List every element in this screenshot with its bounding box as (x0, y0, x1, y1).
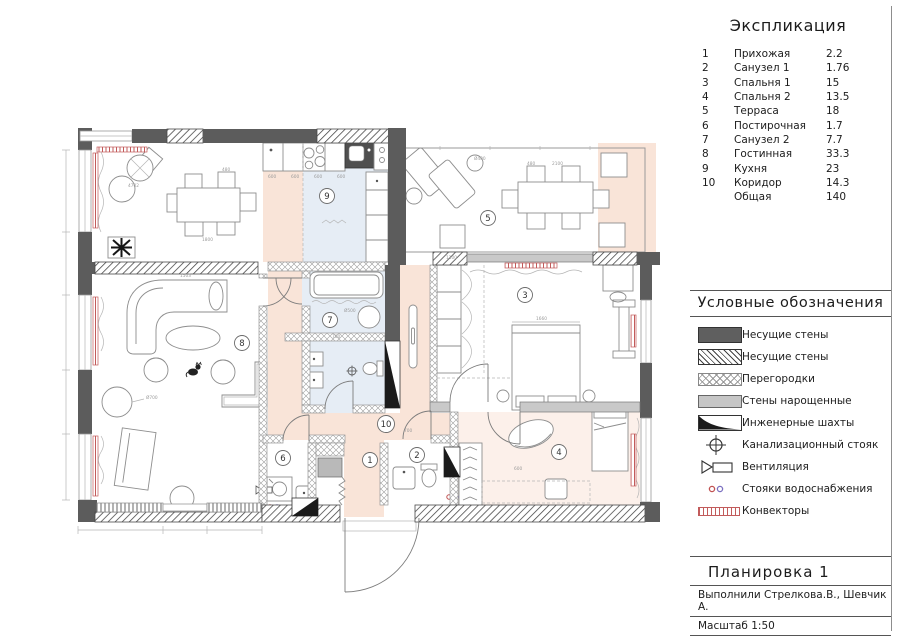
drawing-sheet: 4702 480 1800 1503 Ø700 Ø500 700 600 600… (0, 0, 900, 636)
plant-box (108, 237, 135, 258)
legend-item: Стены нарощенные (690, 390, 891, 412)
svg-text:1503: 1503 (180, 273, 191, 279)
explication-row: 3Спальня 115 (690, 76, 886, 90)
sheet-scale: Масштаб 1:50 (690, 617, 891, 635)
explication-row: 5Терраса18 (690, 104, 886, 118)
svg-text:9: 9 (324, 192, 329, 202)
svg-text:600: 600 (291, 174, 299, 180)
partition-swatch-icon (690, 373, 742, 386)
legend-item: Несущие стены (690, 324, 891, 346)
water-risers-icon (690, 483, 742, 495)
svg-text:2: 2 (414, 451, 419, 461)
sewer-riser-icon (690, 435, 742, 455)
svg-text:700: 700 (404, 428, 412, 434)
legend-title: Условные обозначения (690, 291, 891, 316)
corridor-door-leaf (409, 305, 417, 368)
extended-wall-swatch-icon (690, 395, 742, 408)
hatched-wall-swatch-icon (690, 349, 742, 365)
shaft-swatch-icon (690, 415, 742, 431)
svg-text:480: 480 (222, 167, 230, 173)
svg-text:3: 3 (522, 291, 527, 301)
svg-text:600: 600 (268, 174, 276, 180)
svg-text:Ø700: Ø700 (146, 394, 158, 401)
svg-text:6: 6 (280, 454, 285, 464)
svg-text:600: 600 (314, 174, 322, 180)
solid-wall-swatch-icon (690, 327, 742, 343)
svg-text:10: 10 (381, 420, 392, 430)
convector-swatch-icon (690, 507, 742, 516)
dining-area (108, 147, 256, 258)
svg-text:7: 7 (327, 316, 332, 326)
svg-text:700: 700 (332, 334, 340, 340)
bedroom-3 (437, 265, 635, 410)
legend-item: Стояки водоснабжения (690, 478, 891, 500)
sheet-title: Планировка 1 (690, 557, 891, 585)
legend-item: Вентиляция (690, 456, 891, 478)
svg-text:4: 4 (556, 448, 561, 458)
explication-row: 10Коридор14.3 (690, 176, 886, 190)
svg-text:4702: 4702 (128, 183, 139, 189)
sheet-authors: Выполнили Стрелкова.В., Шевчик А. (690, 586, 891, 616)
living-room (102, 280, 267, 510)
explication-table: Экспликация 1Прихожая2.2 2Санузел 11.76 … (690, 16, 886, 204)
svg-text:8: 8 (239, 339, 244, 349)
explication-row-total: Общая140 (690, 190, 886, 204)
explication-row: 1Прихожая2.2 (690, 47, 886, 61)
svg-text:Ø500: Ø500 (344, 307, 356, 314)
legend-item: Несущие стены (690, 346, 891, 368)
legend-item: Канализационный стояк (690, 434, 891, 456)
explication-row: 7Санузел 27.7 (690, 133, 886, 147)
explication-row: 2Санузел 11.76 (690, 61, 886, 75)
svg-text:2100: 2100 (552, 161, 563, 167)
svg-text:600: 600 (337, 174, 345, 180)
curtains (99, 152, 104, 484)
sheet-right-border (891, 6, 892, 631)
cat (186, 363, 201, 378)
svg-text:480: 480 (527, 161, 535, 167)
explication-row: 4Спальня 213.5 (690, 90, 886, 104)
title-block: Планировка 1 Выполнили Стрелкова.В., Шев… (690, 556, 891, 636)
explication-rows: 1Прихожая2.2 2Санузел 11.76 3Спальня 115… (690, 47, 886, 204)
ventilation-icon (690, 459, 742, 475)
terrace (401, 146, 645, 252)
svg-text:1660: 1660 (536, 316, 547, 322)
legend: Условные обозначения Несущие стены Несущ… (690, 290, 891, 522)
terrace-loungers (401, 147, 483, 209)
explication-row: 6Постирочная1.7 (690, 118, 886, 132)
svg-text:Ø400: Ø400 (474, 155, 486, 162)
svg-text:1800: 1800 (202, 237, 213, 243)
legend-items: Несущие стены Несущие стены Перегородки … (690, 317, 891, 522)
terrace-dining-set (502, 166, 609, 229)
svg-text:1100: 1100 (446, 255, 457, 261)
svg-text:1: 1 (367, 456, 372, 466)
legend-item: Инженерные шахты (690, 412, 891, 434)
svg-text:600: 600 (514, 466, 522, 472)
svg-text:5: 5 (485, 214, 490, 224)
explication-row: 8Гостинная33.3 (690, 147, 886, 161)
explication-row: 9Кухня23 (690, 161, 886, 175)
explication-title: Экспликация (690, 16, 886, 35)
legend-item: Перегородки (690, 368, 891, 390)
legend-item: Конвекторы (690, 500, 891, 522)
